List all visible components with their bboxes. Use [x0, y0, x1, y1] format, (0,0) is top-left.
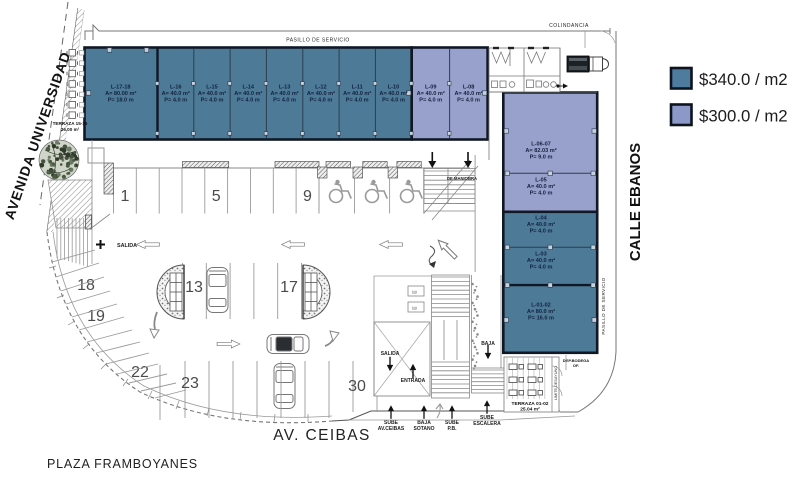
- svg-text:P= 4.0 m: P= 4.0 m: [346, 98, 369, 104]
- svg-text:P= 4.0 m: P= 4.0 m: [530, 229, 553, 235]
- svg-text:A= 40.0 m²: A= 40.0 m²: [379, 90, 407, 97]
- svg-text:9: 9: [303, 188, 312, 205]
- svg-text:$340.0 / m2: $340.0 / m2: [699, 70, 788, 89]
- svg-text:(g): (g): [412, 305, 418, 310]
- svg-text:26.00 m²: 26.00 m²: [61, 127, 80, 132]
- svg-text:17: 17: [280, 279, 298, 296]
- svg-text:CALLE EBANOS: CALLE EBANOS: [627, 143, 644, 261]
- svg-text:18: 18: [77, 277, 95, 294]
- svg-text:A= 40.0 m²: A= 40.0 m²: [234, 90, 262, 97]
- svg-text:L-17-18: L-17-18: [111, 85, 131, 91]
- svg-text:A= 40.0 m²: A= 40.0 m²: [307, 90, 335, 97]
- svg-text:L-11: L-11: [352, 85, 363, 91]
- svg-text:P= 9.0 m: P= 9.0 m: [530, 155, 553, 161]
- svg-text:P= 4.0 m: P= 4.0 m: [530, 191, 553, 197]
- svg-text:TERRAZA 15-16: TERRAZA 15-16: [53, 121, 88, 126]
- svg-text:L-05: L-05: [535, 178, 547, 184]
- svg-text:A= 40.0 m²: A= 40.0 m²: [455, 90, 483, 97]
- svg-text:L-12: L-12: [315, 85, 327, 91]
- svg-text:SALIDA: SALIDA: [117, 243, 137, 249]
- svg-text:30: 30: [348, 378, 366, 395]
- svg-text:OF.: OF.: [573, 363, 579, 368]
- svg-text:AV. CEIBAS: AV. CEIBAS: [273, 427, 371, 444]
- svg-text:$300.0 / m2: $300.0 / m2: [699, 107, 788, 126]
- svg-text:L-14: L-14: [243, 85, 255, 91]
- svg-text:A= 80.00 m²: A= 80.00 m²: [105, 90, 136, 97]
- svg-text:SALIDA: SALIDA: [381, 351, 400, 357]
- svg-text:5: 5: [212, 188, 221, 205]
- svg-text:L-03: L-03: [535, 252, 547, 258]
- svg-text:A= 40.0 m²: A= 40.0 m²: [198, 90, 226, 97]
- svg-text:DE MANIOBRA: DE MANIOBRA: [447, 176, 477, 181]
- svg-text:(g): (g): [412, 289, 418, 294]
- svg-text:23: 23: [181, 375, 199, 392]
- svg-text:L-09: L-09: [425, 85, 437, 91]
- svg-text:A= 82.03 m²: A= 82.03 m²: [525, 147, 556, 154]
- svg-text:L-06-07: L-06-07: [531, 142, 551, 148]
- svg-text:ESCALERA: ESCALERA: [473, 421, 501, 427]
- svg-text:P= 4.0 m: P= 4.0 m: [419, 98, 442, 104]
- svg-text:LIMITE DESAYUNO: LIMITE DESAYUNO: [554, 366, 558, 400]
- svg-text:L-04: L-04: [535, 216, 547, 222]
- svg-text:P= 4.0 m: P= 4.0 m: [201, 98, 224, 104]
- svg-text:P= 4.0 m: P= 4.0 m: [273, 98, 296, 104]
- svg-text:A= 40.0 m²: A= 40.0 m²: [527, 221, 555, 228]
- svg-text:P= 16.0 m: P= 16.0 m: [528, 316, 554, 322]
- svg-text:PASILLO DE SERVICIO: PASILLO DE SERVICIO: [601, 277, 606, 334]
- svg-text:13: 13: [185, 279, 203, 296]
- svg-text:L-13: L-13: [279, 85, 291, 91]
- svg-text:P= 4.0 m: P= 4.0 m: [164, 98, 187, 104]
- svg-text:A= 40.0 m²: A= 40.0 m²: [527, 183, 555, 190]
- svg-text:A= 40.0 m²: A= 40.0 m²: [162, 90, 190, 97]
- svg-text:AV.CEIBAS: AV.CEIBAS: [378, 426, 405, 432]
- svg-text:TERRAZA 01-02: TERRAZA 01-02: [511, 401, 548, 407]
- svg-text:19: 19: [87, 308, 105, 325]
- svg-text:A= 40.0 m²: A= 40.0 m²: [417, 90, 445, 97]
- svg-text:COLINDANCIA: COLINDANCIA: [549, 23, 589, 29]
- svg-text:L-01-02: L-01-02: [531, 303, 551, 309]
- svg-text:P= 4.0 m: P= 4.0 m: [309, 98, 332, 104]
- svg-text:SOTANO: SOTANO: [413, 426, 434, 432]
- svg-text:L-08: L-08: [463, 85, 475, 91]
- svg-text:P.B.: P.B.: [447, 426, 457, 432]
- svg-text:P= 4.0 m: P= 4.0 m: [457, 98, 480, 104]
- svg-text:P= 4.0 m: P= 4.0 m: [382, 98, 405, 104]
- svg-text:P= 4.0 m: P= 4.0 m: [237, 98, 260, 104]
- svg-text:A= 40.0 m²: A= 40.0 m²: [343, 90, 371, 97]
- svg-text:PASILLO DE SERVICIO: PASILLO DE SERVICIO: [286, 38, 350, 44]
- svg-text:L-16: L-16: [170, 85, 182, 91]
- svg-text:1: 1: [120, 188, 129, 205]
- svg-text:ENTRADA: ENTRADA: [401, 378, 426, 384]
- svg-text:P= 18.0 m: P= 18.0 m: [108, 98, 134, 104]
- svg-text:A= 40.0 m²: A= 40.0 m²: [271, 90, 299, 97]
- svg-text:25.04 m²: 25.04 m²: [520, 407, 540, 413]
- svg-text:A= 40.0 m²: A= 40.0 m²: [527, 257, 555, 264]
- svg-text:L-15: L-15: [206, 85, 218, 91]
- svg-text:L-10: L-10: [388, 85, 400, 91]
- svg-text:P= 4.0 m: P= 4.0 m: [530, 265, 553, 271]
- svg-text:A= 80.0 m²: A= 80.0 m²: [527, 308, 555, 315]
- svg-text:PLAZA FRAMBOYANES: PLAZA FRAMBOYANES: [47, 457, 198, 471]
